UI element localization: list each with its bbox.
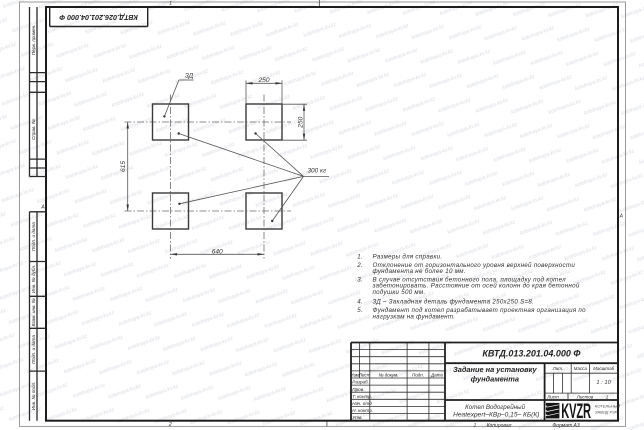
svg-text:Лист: Лист (546, 395, 559, 400)
svg-text:Котел Водогрейный: Котел Водогрейный (465, 404, 525, 411)
svg-text:Пров.: Пров. (352, 387, 364, 392)
svg-text:3.: 3. (357, 276, 363, 283)
svg-text:Масса: Масса (574, 366, 588, 371)
svg-text:№ докум.: № докум. (379, 373, 399, 378)
svg-text:ЗД: ЗД (185, 73, 194, 80)
svg-text:Подп.: Подп. (412, 373, 424, 378)
svg-text:фундамента не более 10 мм.: фундамента не более 10 мм. (373, 268, 466, 275)
svg-text:ЗД – Закладная деталь фундамен: ЗД – Закладная деталь фундамента 250x250… (373, 299, 535, 306)
svg-text:1.: 1. (357, 253, 363, 260)
svg-text:Лист: Лист (358, 373, 371, 378)
svg-text:КВТД.013.201.04.000 Ф: КВТД.013.201.04.000 Ф (482, 348, 580, 358)
svg-text:Формат А3: Формат А3 (552, 423, 580, 429)
svg-text:1 : 10: 1 : 10 (596, 380, 611, 386)
svg-text:Дата: Дата (430, 373, 443, 378)
svg-text:250: 250 (257, 77, 269, 84)
svg-text:КОТЕЛЬНЫЙ: КОТЕЛЬНЫЙ (595, 404, 620, 409)
svg-text:Утв.: Утв. (352, 415, 362, 420)
svg-text:А: А (619, 214, 624, 220)
svg-text:нагрузкам на фундамент.: нагрузкам на фундамент. (373, 313, 456, 320)
svg-text:подушки 500 мм.: подушки 500 мм. (373, 289, 426, 296)
svg-text:2.: 2. (356, 262, 363, 269)
svg-text:Инв. № подл.: Инв. № подл. (31, 382, 36, 411)
svg-text:KVZR: KVZR (561, 399, 591, 423)
svg-text:Перв. примен.: Перв. примен. (31, 25, 36, 56)
svg-text:2: 2 (168, 422, 172, 428)
svg-text:Задание на установку: Задание на установку (453, 365, 537, 374)
svg-text:А: А (40, 205, 45, 211)
svg-text:5.: 5. (357, 307, 363, 314)
svg-text:Лит.: Лит. (552, 366, 564, 371)
svg-text:ЗАВОД РЗР: ЗАВОД РЗР (595, 410, 618, 415)
svg-text:615: 615 (120, 161, 127, 172)
svg-text:КВТД.026.201.04.000 Ф: КВТД.026.201.04.000 Ф (59, 13, 138, 22)
svg-text:Масштаб: Масштаб (593, 366, 614, 371)
svg-text:Т. контр.: Т. контр. (352, 394, 372, 399)
svg-text:Справ. №: Справ. № (31, 119, 36, 140)
svg-text:Инв. № дубл.: Инв. № дубл. (31, 265, 36, 293)
svg-text:640: 640 (212, 248, 223, 255)
svg-text:300 кг: 300 кг (308, 168, 327, 175)
svg-text:Подп. и дата: Подп. и дата (31, 222, 36, 251)
svg-text:Нач. отд: Нач. отд (352, 401, 372, 406)
svg-text:4.: 4. (357, 299, 363, 306)
svg-text:Н. контр.: Н. контр. (352, 408, 373, 413)
svg-text:1: 1 (474, 423, 477, 429)
svg-text:Разраб.: Разраб. (352, 380, 369, 385)
svg-text:Подп. и дата: Подп. и дата (31, 335, 36, 364)
svg-text:250: 250 (297, 116, 304, 128)
svg-text:Размеры для справки.: Размеры для справки. (373, 253, 443, 260)
svg-text:фундамента: фундамента (471, 375, 519, 384)
svg-text:Копировал: Копировал (487, 423, 512, 429)
svg-text:Взам. инв. №: Взам. инв. № (31, 298, 36, 326)
svg-text:Heatexpert–КВр–0,15– КБ(К): Heatexpert–КВр–0,15– КБ(К) (453, 412, 539, 419)
